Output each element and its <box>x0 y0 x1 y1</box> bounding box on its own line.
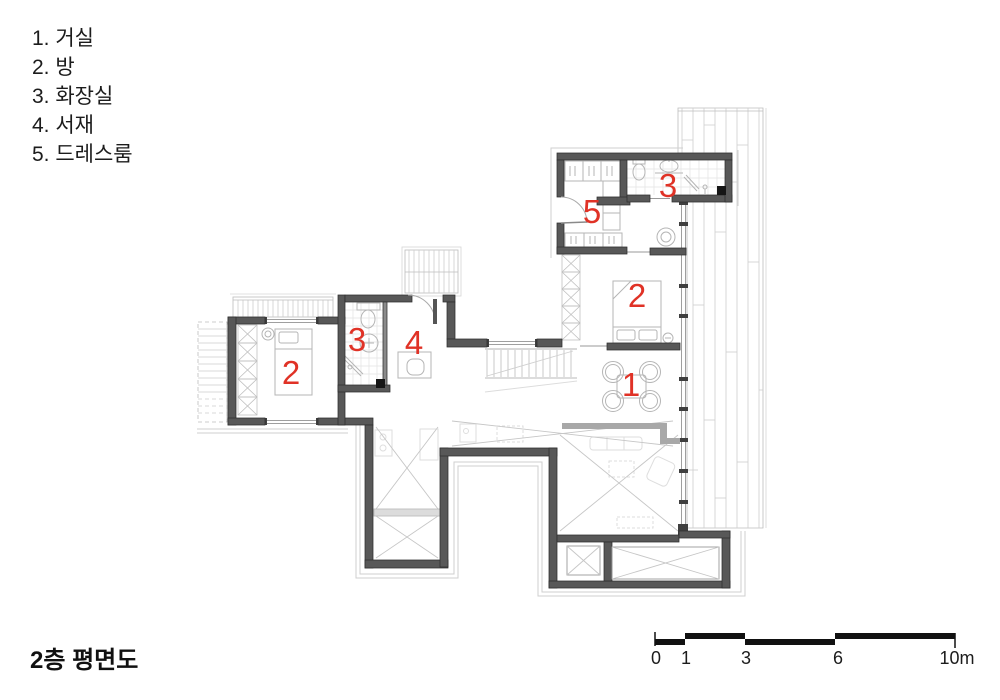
scale-label-6: 6 <box>833 648 843 668</box>
room-label-bedroom-right: 2 <box>628 277 646 314</box>
legend-item: 3. 화장실 <box>32 82 133 111</box>
room-label-study: 4 <box>405 324 423 361</box>
room-label-living: 1 <box>622 366 640 403</box>
room-label-bath-top: 3 <box>659 167 677 204</box>
deck-right <box>678 108 766 528</box>
scale-label-0: 0 <box>651 648 661 668</box>
room-label-bedroom-left: 2 <box>282 354 300 391</box>
scale-bar: 0 1 3 6 10m <box>651 632 975 668</box>
legend: 1. 거실 2. 방 3. 화장실 4. 서재 5. 드레스룸 <box>32 24 133 169</box>
shafts <box>567 546 719 579</box>
legend-item: 2. 방 <box>32 53 133 82</box>
walls <box>228 153 732 588</box>
scale-label-1: 1 <box>681 648 691 668</box>
deck-left-strip <box>230 294 336 317</box>
legend-item: 1. 거실 <box>32 24 133 53</box>
roof-outline <box>197 148 745 596</box>
legend-item: 5. 드레스룸 <box>32 140 133 169</box>
room-label-dressing: 5 <box>583 193 601 230</box>
legend-item: 4. 서재 <box>32 111 133 140</box>
terrace-stairs-left <box>198 322 227 422</box>
floor-plan-svg: 1 2 2 3 3 4 5 0 1 3 6 10m <box>0 0 1000 700</box>
scale-label-10m: 10m <box>939 648 974 668</box>
room-label-bath-left: 3 <box>348 321 366 358</box>
scale-label-3: 3 <box>741 648 751 668</box>
staircase <box>485 349 577 392</box>
floor-plan-page: 1. 거실 2. 방 3. 화장실 4. 서재 5. 드레스룸 2층 평면도 <box>0 0 1000 700</box>
deck-top-small <box>402 247 461 296</box>
parapet <box>562 423 680 444</box>
page-title: 2층 평면도 <box>30 640 138 675</box>
